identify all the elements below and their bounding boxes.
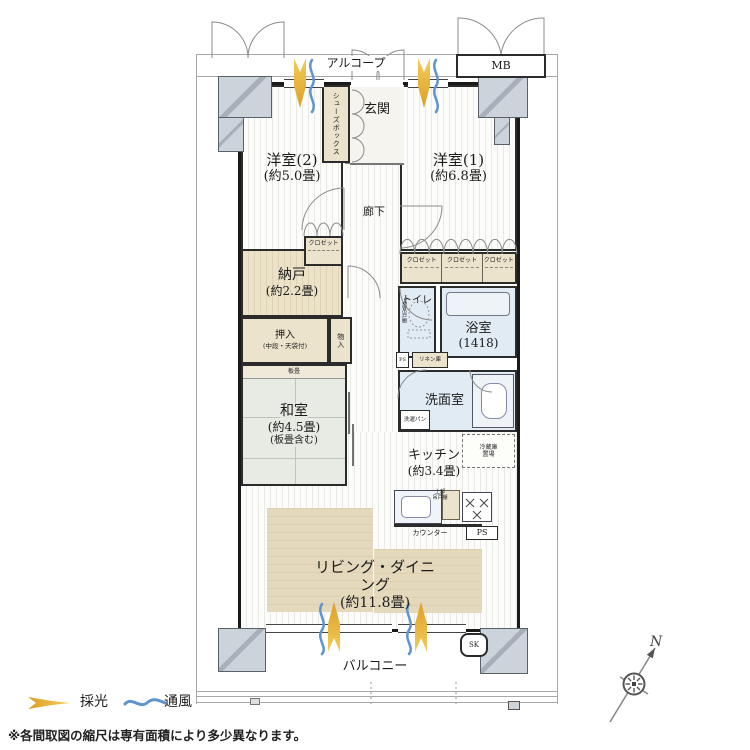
alcove-label: アルコープ — [320, 56, 392, 71]
counter-label: カウンター — [400, 529, 460, 538]
stove-burners — [466, 499, 488, 519]
room-size: (約11.8畳) — [310, 595, 440, 612]
kitchen-upper-cabinet-label: 上部 吊戸棚 — [428, 489, 452, 501]
balcony-dashes — [371, 682, 456, 706]
balcony-label: バルコニー — [336, 659, 414, 675]
room-label: リビング・ダイニング — [310, 558, 440, 595]
daylight-icon — [294, 58, 306, 108]
compass-north-label: N — [650, 634, 662, 651]
room-label: キッチン — [398, 448, 470, 464]
room-size: (約3.4畳) — [398, 464, 470, 479]
scale-note: ※各間取図の縮尺は専有面積により多少異なります。 — [8, 725, 548, 744]
ventilation-legend-label: 通風 — [164, 694, 192, 711]
ventilation-legend-icon — [122, 694, 170, 712]
daylight-legend-label: 採光 — [80, 694, 108, 711]
daylight-icon — [418, 58, 430, 108]
hallway-label: 廊下 — [348, 205, 400, 218]
upper-cabinet-line2: 吊戸棚 — [428, 495, 452, 501]
sliding-doors — [349, 392, 353, 466]
kitchen-label-group: キッチン (約3.4畳) — [398, 448, 470, 478]
floor-plan: 洋室(2) (約5.0畳) 洋室(1) (約6.8畳) シューズボックス クロゼ… — [0, 0, 750, 750]
entrance-label: 玄関 — [354, 102, 400, 118]
toilet-upper-cabinet-label: 上部吊戸棚 — [399, 298, 407, 352]
daylight-legend-icon — [26, 694, 72, 712]
living-label-group: リビング・ダイニング (約11.8畳) — [310, 558, 440, 612]
